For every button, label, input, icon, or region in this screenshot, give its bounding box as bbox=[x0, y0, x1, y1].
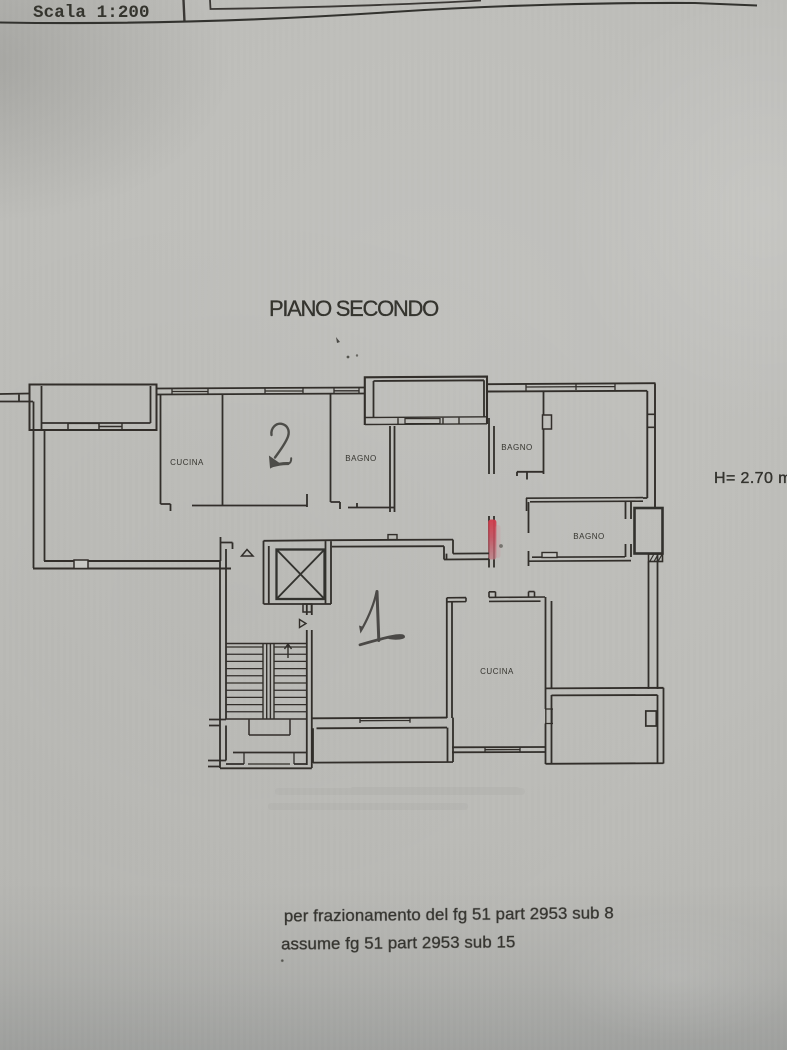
svg-text:BAGNO: BAGNO bbox=[345, 454, 376, 463]
svg-text:BAGNO: BAGNO bbox=[573, 532, 604, 541]
svg-text:CUCINA: CUCINA bbox=[170, 458, 204, 467]
svg-text:BAGNO: BAGNO bbox=[501, 443, 532, 452]
svg-text:CUCINA: CUCINA bbox=[480, 667, 514, 676]
svg-text:Scala 1:200: Scala 1:200 bbox=[33, 3, 150, 23]
svg-text:assume fg 51 part 2953 sub 15: assume fg 51 part 2953 sub 15 bbox=[281, 932, 515, 953]
